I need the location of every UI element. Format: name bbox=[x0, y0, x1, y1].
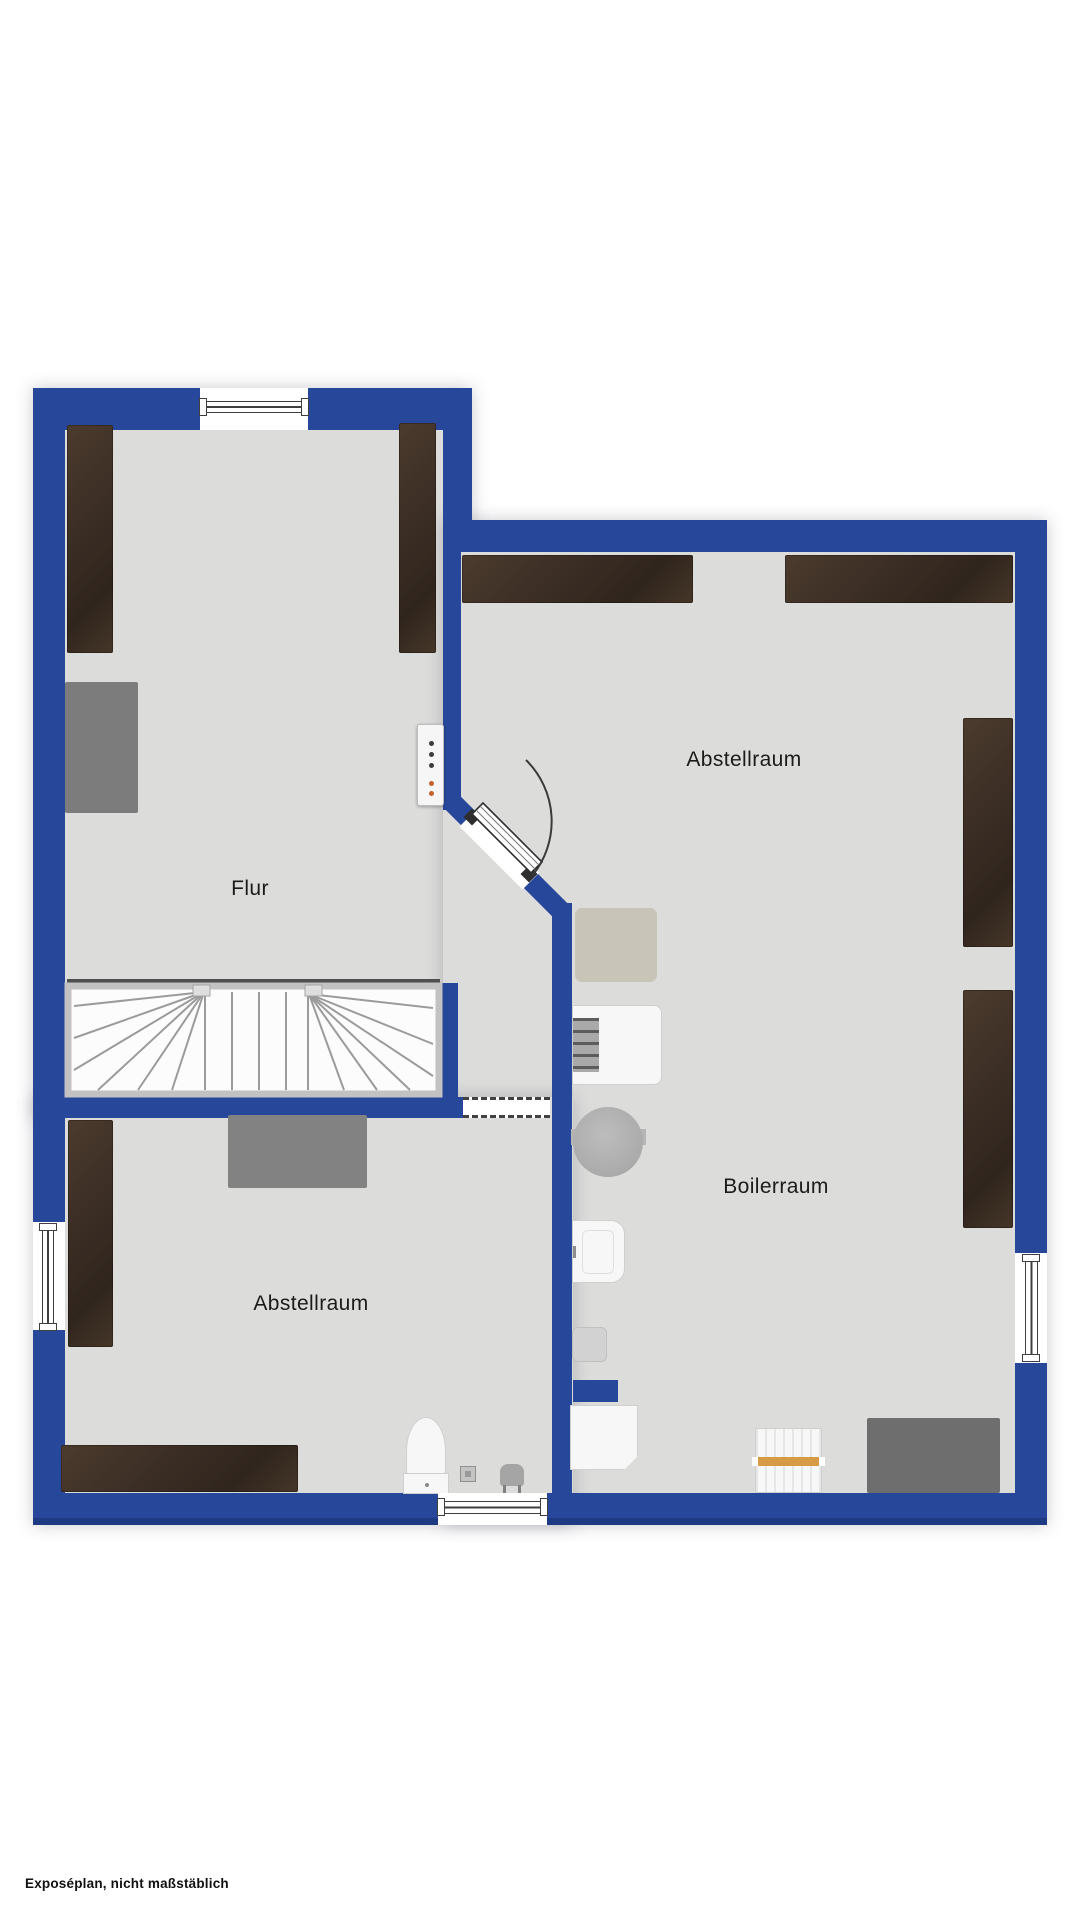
wood-shelf-abstellraum-bottom-left bbox=[68, 1120, 113, 1347]
desk-gray-flur bbox=[65, 682, 138, 813]
panel-dot-icon bbox=[429, 763, 434, 768]
window-left-cap bbox=[39, 1323, 57, 1331]
water-heater bbox=[572, 1220, 625, 1283]
room-label-boilerraum: Boilerraum bbox=[723, 1175, 829, 1199]
floor-drain bbox=[460, 1466, 476, 1482]
rug bbox=[575, 908, 657, 982]
wood-shelf-abstellraum-bottom bbox=[61, 1445, 298, 1492]
floorplan-canvas: Flur Abstellraum Boilerraum Abstellraum … bbox=[0, 0, 1080, 1920]
window-top-cap bbox=[301, 398, 309, 416]
wood-shelf-abstellraum-top-2 bbox=[785, 555, 1013, 603]
window-top-glass bbox=[204, 401, 304, 413]
wood-shelf-right-wall-lower bbox=[963, 990, 1013, 1228]
window-bottom-cap bbox=[437, 1498, 445, 1516]
washing-machine bbox=[572, 1005, 662, 1085]
window-bottom-glass bbox=[442, 1501, 543, 1514]
toilet-tank bbox=[403, 1473, 449, 1494]
panel-dot-icon bbox=[429, 741, 434, 746]
wood-shelf-right-wall-upper bbox=[963, 718, 1013, 947]
plan-footnote: Exposéplan, nicht maßstäblich bbox=[25, 1876, 229, 1891]
passage-opening bbox=[463, 1097, 550, 1118]
stairs-winder bbox=[67, 981, 440, 1094]
gray-unit-boilerraum bbox=[867, 1418, 1000, 1493]
panel-dot-icon bbox=[429, 791, 434, 796]
stool-sink bbox=[500, 1464, 524, 1494]
room-label-abstellraum-top: Abstellraum bbox=[686, 748, 801, 772]
plan-linework bbox=[0, 0, 1080, 1920]
washing-machine-controls bbox=[573, 1018, 599, 1072]
window-top-cap bbox=[199, 398, 207, 416]
toilet-button bbox=[425, 1483, 429, 1487]
window-bottom-cap bbox=[540, 1498, 548, 1516]
water-heater-lid bbox=[582, 1230, 614, 1274]
room-label-flur: Flur bbox=[231, 877, 269, 901]
toilet-bowl bbox=[406, 1417, 446, 1477]
round-tank bbox=[573, 1107, 643, 1177]
room-label-abstellraum-bottom: Abstellraum bbox=[253, 1292, 368, 1316]
panel-dot-icon bbox=[429, 781, 434, 786]
white-cabinet bbox=[570, 1405, 638, 1470]
wood-shelf-flur-right bbox=[399, 423, 436, 653]
water-heater-handle bbox=[573, 1246, 576, 1258]
panel-dot-icon bbox=[429, 752, 434, 757]
window-right-glass bbox=[1025, 1258, 1038, 1358]
desk-gray-abstellraum bbox=[228, 1115, 367, 1188]
electrical-panel bbox=[417, 724, 444, 806]
window-left-glass bbox=[42, 1227, 54, 1325]
window-right-cap bbox=[1022, 1254, 1040, 1262]
wood-shelf-abstellraum-top-1 bbox=[462, 555, 693, 603]
floor-drain-grate bbox=[465, 1471, 471, 1477]
window-right-cap bbox=[1022, 1354, 1040, 1362]
window-left-cap bbox=[39, 1223, 57, 1231]
toilet bbox=[403, 1415, 449, 1495]
radiator bbox=[755, 1428, 822, 1493]
radiator-bar bbox=[752, 1457, 825, 1466]
wood-shelf-flur-left bbox=[67, 425, 113, 653]
small-box bbox=[572, 1327, 607, 1362]
stool-sink-top bbox=[500, 1464, 524, 1486]
